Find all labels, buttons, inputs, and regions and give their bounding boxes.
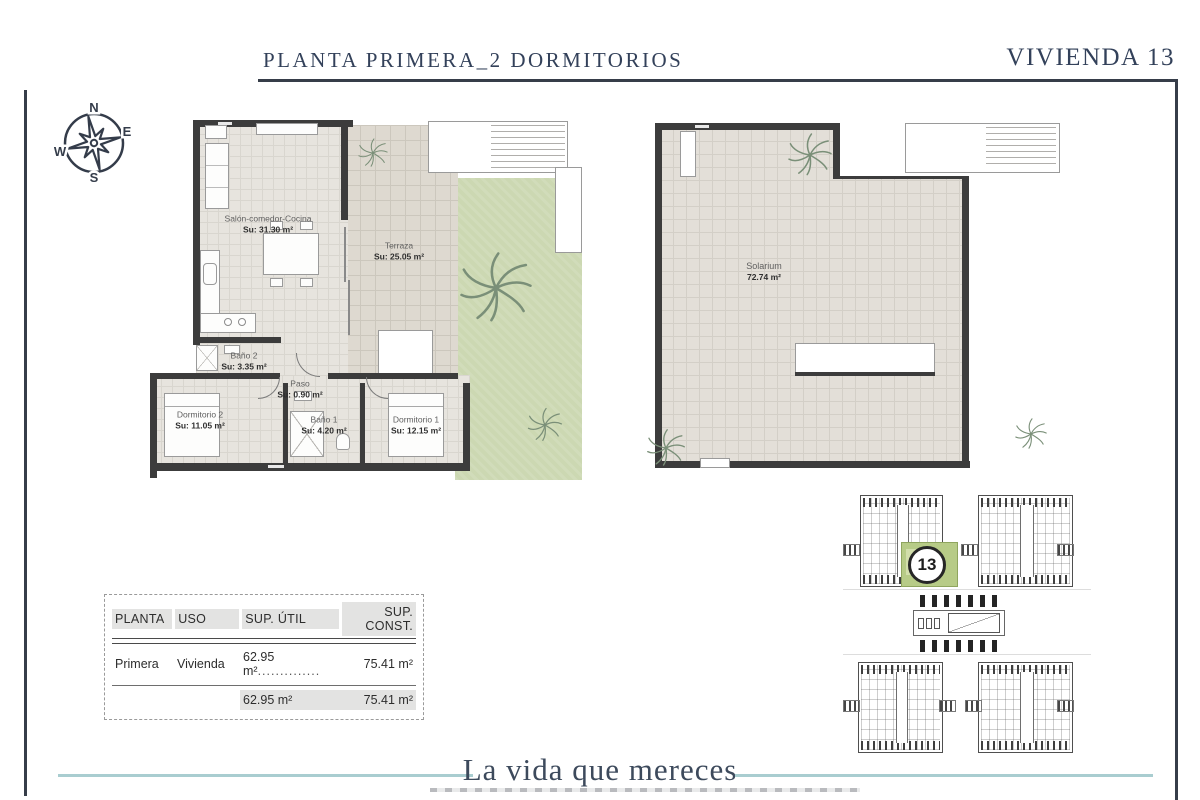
building-block: [858, 662, 943, 753]
col-header-sup-const: SUP. CONST.: [342, 602, 416, 636]
bed-pillow: [165, 394, 219, 407]
chair: [270, 278, 283, 287]
palm-tree-icon: [785, 130, 835, 180]
compass-s: S: [90, 170, 99, 184]
chair: [300, 278, 313, 287]
table-rule: [112, 638, 416, 644]
total-sup-util: 62.95 m²: [240, 690, 340, 710]
plot-line: [843, 589, 1091, 590]
compass-rose-icon: N E S W: [54, 98, 134, 184]
stair-mark: [843, 700, 860, 712]
wall: [360, 383, 365, 465]
roof-block-side: [555, 167, 582, 253]
ladder: [680, 131, 696, 177]
tagline: La vida que mereces: [0, 752, 1200, 788]
col-header-planta: PLANTA: [112, 609, 172, 629]
bush-icon: [353, 133, 393, 173]
shower: [196, 345, 218, 371]
col-header-sup-util: SUP. ÚTIL: [242, 609, 339, 629]
tv-cabinet: [256, 123, 318, 135]
floorplan-solarium: Solarium 72.74 m²: [635, 115, 1075, 475]
wall: [833, 176, 969, 179]
room-label-salon: Salón-comedor-Cocina Su: 31.30 m²: [225, 214, 312, 237]
room-label-dormitorio1: Dormitorio 1 Su: 12.15 m²: [391, 415, 441, 438]
pool-area: [913, 610, 1005, 636]
cell-sup-util: 62.95 m²..............: [240, 647, 340, 681]
page-title: PLANTA PRIMERA_2 DORMITORIOS: [263, 48, 683, 73]
stair-mark: [961, 544, 978, 556]
stair-mark: [939, 700, 956, 712]
stove-burner: [224, 318, 232, 326]
roof-hatch: [986, 127, 1056, 169]
pool: [948, 613, 1000, 633]
site-key-plan: 13: [843, 492, 1091, 754]
block-corridor: [896, 672, 909, 743]
dining-table: [263, 233, 319, 275]
room-name: Dormitorio 1: [393, 415, 439, 425]
table-header-row: PLANTA USO SUP. ÚTIL SUP. CONST.: [112, 602, 416, 636]
room-area: Su: 12.15 m²: [391, 426, 441, 437]
kitchen-sink: [203, 263, 217, 285]
block-corridor: [1020, 505, 1034, 577]
solarium-stairs: [795, 343, 935, 373]
plot-line: [843, 654, 1091, 655]
cell-sup-const: 75.41 m²: [340, 654, 416, 674]
table-rule: [112, 685, 416, 686]
pool-detail: [918, 618, 924, 629]
sliding-door: [344, 227, 346, 282]
wall: [150, 463, 470, 471]
roof-block: [428, 121, 568, 173]
stair-mark: [1057, 544, 1074, 556]
room-area: Su: 31.30 m²: [225, 225, 312, 236]
wall-dim-mark: [268, 465, 284, 468]
vent: [700, 458, 730, 468]
floorplan-first-floor: Salón-comedor-Cocina Su: 31.30 m² Terraz…: [148, 115, 584, 481]
room-label-solarium: Solarium 72.74 m²: [746, 260, 782, 284]
wall: [655, 123, 662, 468]
table-total-row: 62.95 m² 75.41 m²: [112, 690, 416, 710]
compass-e: E: [123, 124, 132, 139]
room-area: Su: 4.20 m²: [301, 426, 346, 437]
sliding-door: [348, 280, 350, 335]
room-area: Su: 25.05 m²: [374, 252, 424, 263]
brochure-page: PLANTA PRIMERA_2 DORMITORIOS VIVIENDA 13: [0, 0, 1200, 800]
sofa: [205, 143, 229, 209]
col-header-uso: USO: [175, 609, 239, 629]
room-area: Su: 11.05 m²: [175, 421, 225, 432]
bush-icon: [523, 403, 567, 447]
armchair: [205, 125, 227, 139]
pool-detail: [934, 618, 940, 629]
tagline-line-right: [735, 774, 1153, 777]
unit-title: VIVIENDA 13: [1006, 44, 1175, 72]
bush-icon: [643, 425, 689, 471]
room-name: Dormitorio 2: [177, 410, 223, 420]
bed-pillow: [389, 394, 443, 407]
stove-burner: [238, 318, 246, 326]
parking-row: [920, 595, 998, 607]
compass-n: N: [89, 100, 98, 115]
total-spacer: [174, 697, 240, 703]
wall: [341, 120, 348, 220]
cell-planta: Primera: [112, 654, 174, 674]
table-data-row: Primera Vivienda 62.95 m².............. …: [112, 647, 416, 681]
wall: [655, 123, 840, 130]
wall: [962, 176, 969, 468]
unit-number-badge: 13: [908, 546, 946, 584]
room-area: Su: 3.35 m²: [221, 362, 266, 373]
parking-row: [920, 640, 998, 652]
room-name: Salón-comedor-Cocina: [225, 214, 312, 224]
stair-mark: [1057, 700, 1074, 712]
room-label-paso: Paso Su: 0.90 m²: [277, 379, 322, 402]
room-area: Su: 0.90 m²: [277, 390, 322, 401]
stair-mark: [965, 700, 982, 712]
cell-uso: Vivienda: [174, 654, 240, 674]
room-label-dormitorio2: Dormitorio 2 Su: 11.05 m²: [175, 410, 225, 433]
room-label-bano1: Baño 1 Su: 4.20 m²: [301, 415, 346, 438]
bottom-edge-artifact: [430, 788, 860, 792]
unit-number: 13: [918, 555, 937, 575]
bush-icon: [1010, 413, 1052, 455]
room-name: Baño 2: [231, 351, 258, 361]
roof-block: [905, 123, 1060, 173]
surface-table: PLANTA USO SUP. ÚTIL SUP. CONST. Primera…: [104, 594, 424, 720]
room-name: Paso: [290, 379, 309, 389]
room-area: 72.74 m²: [746, 272, 782, 283]
room-name: Baño 1: [311, 415, 338, 425]
total-spacer: [112, 697, 174, 703]
room-label-terraza: Terraza Su: 25.05 m²: [374, 241, 424, 264]
stair-mark: [843, 544, 860, 556]
room-name: Terraza: [385, 241, 413, 251]
wall: [463, 383, 470, 469]
header-rule: [258, 79, 1175, 82]
wall: [328, 373, 458, 379]
wall: [795, 372, 935, 376]
room-name: Solarium: [746, 261, 782, 271]
wall-dim-mark: [695, 125, 709, 128]
dot-leader: ..............: [258, 664, 321, 678]
roof-hatch: [491, 125, 565, 169]
pool-detail: [926, 618, 932, 629]
frame-left-line: [24, 90, 27, 796]
compass-w: W: [54, 144, 67, 159]
block-corridor: [1020, 672, 1034, 743]
room-label-bano2: Baño 2 Su: 3.35 m²: [221, 351, 266, 374]
total-sup-const: 75.41 m²: [340, 690, 416, 710]
terrace-stairs: [378, 330, 433, 375]
wall: [193, 337, 281, 343]
wall: [193, 120, 200, 345]
palm-tree-icon: [458, 250, 534, 326]
frame-right-line: [1175, 79, 1178, 800]
building-block: [978, 495, 1073, 587]
